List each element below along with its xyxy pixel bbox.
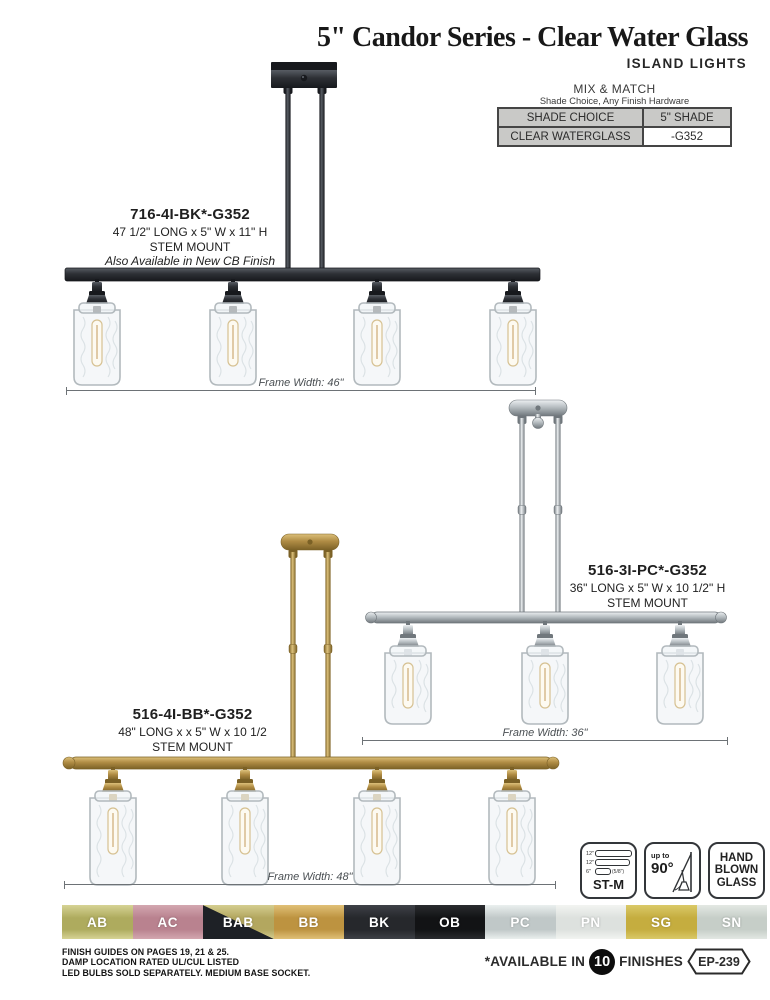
finish-swatch-label: SG: [651, 915, 672, 930]
stem-rod-row: 6"(5/8"): [586, 867, 632, 876]
available-suffix: FINISHES: [619, 954, 683, 969]
hand-blown-glass-label: HAND BLOWN GLASS: [710, 844, 763, 897]
finish-swatch-label: AC: [158, 915, 179, 930]
finish-swatch-bb: BB: [274, 905, 345, 939]
finish-swatch-ac: AC: [133, 905, 204, 939]
finish-swatch-ob: OB: [415, 905, 486, 939]
stem-rod-glyph: [595, 850, 632, 857]
frame-width-dimension: Frame Width: 48": [64, 871, 556, 885]
finish-swatch-row: ABACBABBBBKOBPCPNSGSN: [62, 905, 767, 939]
finish-swatch-pc: PC: [485, 905, 556, 939]
available-prefix: *AVAILABLE IN: [485, 954, 585, 969]
finish-count-badge: 10: [589, 949, 615, 975]
hand-blown-glass-line: HAND: [720, 852, 753, 865]
catalog-page: 5" Candor Series - Clear Water Glass ISL…: [0, 0, 770, 1000]
finish-swatch-ab: AB: [62, 905, 133, 939]
finish-swatch-sg: SG: [626, 905, 697, 939]
finish-swatch-label: OB: [439, 915, 460, 930]
finish-swatch-pn: PN: [556, 905, 627, 939]
finish-swatch-label: BB: [299, 915, 320, 930]
finish-swatch-label: BK: [369, 915, 390, 930]
stem-mount-icon: 12"12"6"(5/8") ST-M: [580, 842, 637, 899]
finish-swatch-label: SN: [722, 915, 742, 930]
finish-swatch-bk: BK: [344, 905, 415, 939]
finish-swatch-label: PN: [581, 915, 601, 930]
stem-rod-glyph: [595, 859, 630, 866]
dimension-line: [66, 390, 536, 391]
stem-rod-glyph: [595, 868, 611, 875]
stem-rod-length-label: 12": [586, 860, 595, 866]
frame-width-dimension: Frame Width: 46": [66, 377, 536, 391]
sloped-ceiling-small-label: up to: [651, 851, 669, 860]
sloped-ceiling-glyph: [670, 848, 696, 894]
stem-rod-length-label: 6": [586, 869, 595, 875]
hand-blown-glass-line: BLOWN: [715, 864, 758, 877]
page-title: 5" Candor Series - Clear Water Glass: [317, 22, 748, 54]
footer-notes: FINISH GUIDES ON PAGES 19, 21 & 25.DAMP …: [62, 947, 310, 978]
finish-swatch-label: BAB: [223, 915, 254, 930]
finish-swatch-sn: SN: [697, 905, 768, 939]
stem-rod-row: 12": [586, 858, 632, 867]
page-ref-label: EP-239: [698, 955, 740, 969]
stem-mount-icon-label: ST-M: [582, 877, 635, 892]
hand-blown-glass-line: GLASS: [717, 877, 757, 890]
footer-note-line: LED BULBS SOLD SEPARATELY. MEDIUM BASE S…: [62, 968, 310, 978]
footer-note-line: DAMP LOCATION RATED UL/CUL LISTED: [62, 957, 310, 967]
sloped-ceiling-icon: up to 90°: [644, 842, 701, 899]
frame-width-label: Frame Width: 46": [66, 377, 536, 389]
footer-note-line: FINISH GUIDES ON PAGES 19, 21 & 25.: [62, 947, 310, 957]
stem-rods: 12"12"6"(5/8"): [582, 844, 635, 876]
frame-width-label: Frame Width: 48": [64, 871, 556, 883]
available-finishes: *AVAILABLE IN 10 FINISHES EP-239: [485, 948, 751, 975]
finish-swatch-bab: BAB: [203, 905, 274, 939]
fixture-image-516-4i-bb: [58, 528, 563, 888]
finish-swatch-label: PC: [510, 915, 530, 930]
hand-blown-glass-icon: HAND BLOWN GLASS: [708, 842, 765, 899]
fixture-image-716-4i-bk: [60, 55, 545, 395]
finish-swatch-label: AB: [87, 915, 108, 930]
stem-rod-length-label: 12": [586, 851, 595, 857]
stem-rod-note: (5/8"): [612, 869, 624, 875]
stem-rod-row: 12": [586, 849, 632, 858]
dimension-line: [64, 884, 556, 885]
table-cell: -G352: [643, 127, 731, 146]
page-subtitle: ISLAND LIGHTS: [627, 56, 747, 71]
table-header-cell: 5" SHADE: [643, 108, 731, 127]
page-ref-badge: EP-239: [687, 948, 751, 975]
